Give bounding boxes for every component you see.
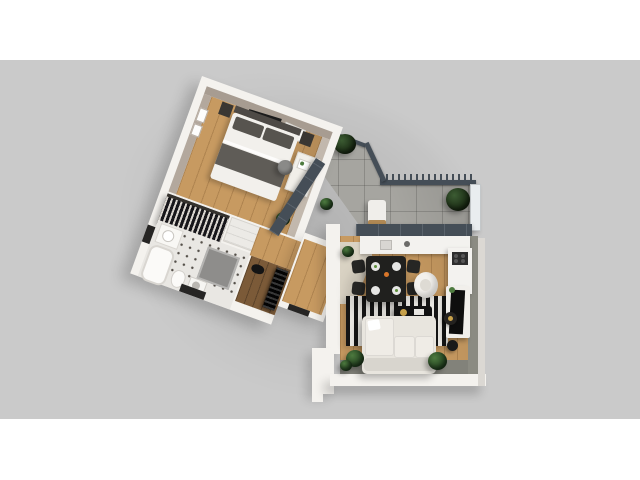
entry-plant: [342, 246, 354, 257]
egg-chair-cushion: [420, 279, 431, 291]
floor-lamp: [447, 340, 458, 351]
food-dot-green2: [395, 289, 398, 292]
console-plant-dot: [449, 287, 455, 293]
living-wall-east-outer: [478, 238, 485, 386]
cooktop-burner-1: [454, 254, 458, 258]
food-dot-orange: [384, 272, 389, 277]
plate-3: [371, 286, 380, 295]
cooktop-burner-4: [461, 259, 465, 263]
kitchen-kettle-dot: [404, 241, 410, 247]
balcony-railing-top: [380, 180, 476, 185]
letterbox-top: [0, 0, 640, 60]
cooktop-burner-3: [454, 259, 458, 263]
dining-chair-1: [351, 259, 366, 274]
window-wall-horizontal: [356, 224, 472, 236]
kitchen-sink-dot: [380, 240, 392, 250]
balcony-plant-small: [320, 198, 333, 210]
coffee-table-book: [414, 309, 424, 315]
sofa-backrest: [364, 358, 434, 371]
floorplan-render: [0, 0, 640, 480]
sofa-seat-cushion-1: [394, 336, 415, 358]
food-dot-green: [374, 265, 377, 268]
balcony-plant-right: [446, 188, 470, 211]
living-wall-stub-bl2: [312, 390, 323, 402]
balcony-railing-slats: [380, 174, 476, 180]
render-background: [0, 60, 640, 419]
living-plant-left2: [340, 360, 352, 371]
coffee-table-tray: [400, 309, 407, 316]
cooktop-burner-2: [461, 254, 465, 258]
letterbox-bottom: [0, 419, 640, 480]
living-wall-bottom: [330, 374, 486, 386]
sofa-pillow: [367, 319, 381, 331]
dining-chair-2: [351, 281, 365, 295]
living-plant-right: [428, 352, 447, 370]
stool-gold-dot: [448, 316, 453, 321]
living-wall-left: [326, 224, 340, 354]
dining-chair-3: [406, 259, 420, 273]
living-wall-stub-bl: [312, 348, 334, 394]
plate-2: [392, 262, 401, 271]
